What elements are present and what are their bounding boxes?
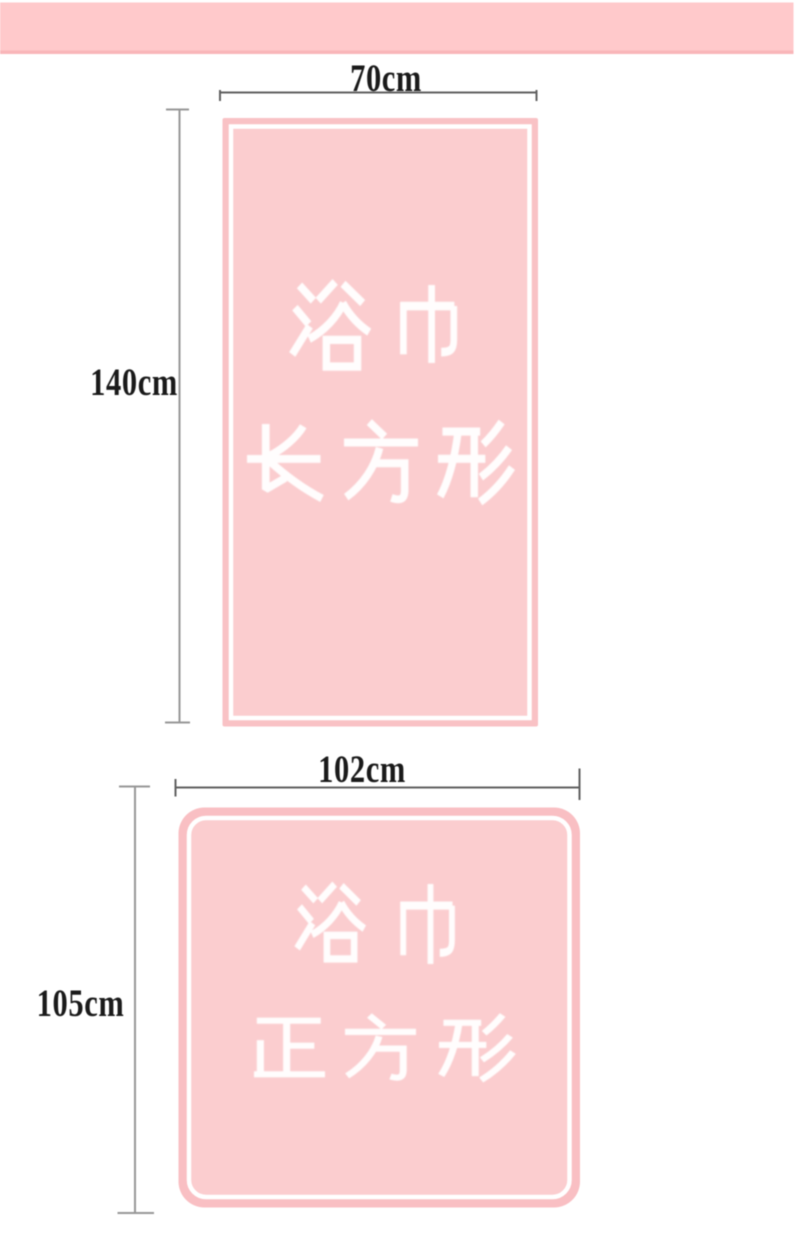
svg-text:102cm: 102cm <box>318 747 406 790</box>
svg-text:105cm: 105cm <box>37 981 125 1024</box>
svg-text:140cm: 140cm <box>90 360 178 403</box>
